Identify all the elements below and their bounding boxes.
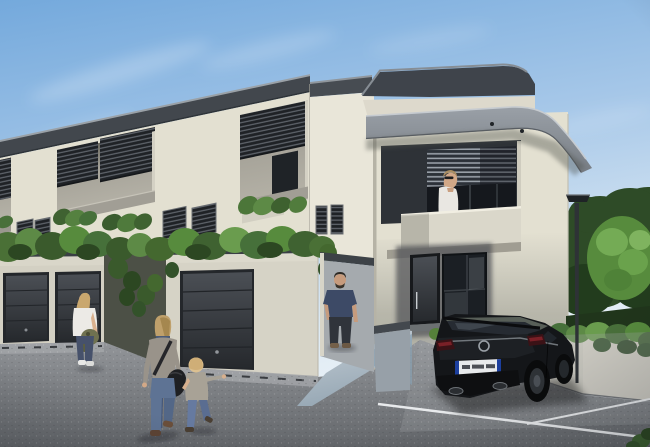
vignette — [0, 0, 650, 447]
architectural-rendering: Photorealistic daytime rendering of a mo… — [0, 0, 650, 447]
rendering-stage: Photorealistic daytime rendering of a mo… — [0, 0, 650, 447]
